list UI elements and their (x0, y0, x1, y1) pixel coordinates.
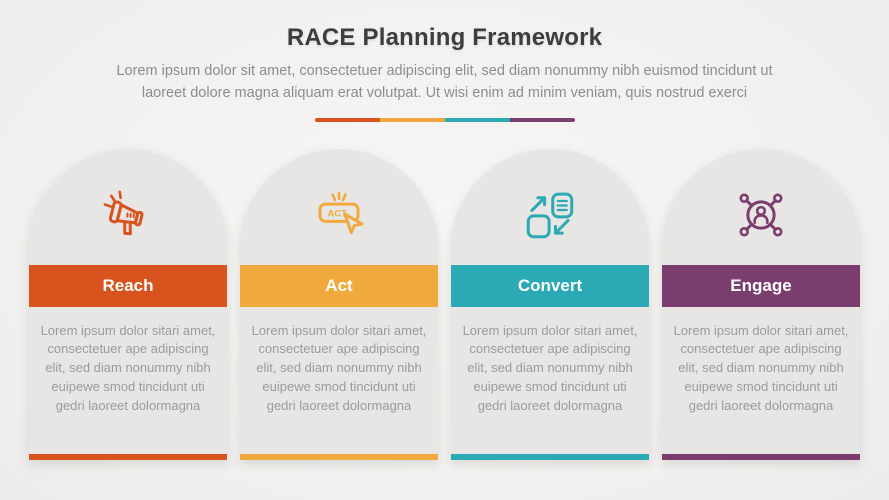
column-act: ACT Act Lorem ipsum dolor sitari amet, c… (240, 149, 438, 460)
column-convert: Convert Lorem ipsum dolor sitari amet, c… (451, 149, 649, 460)
column-description: Lorem ipsum dolor sitari amet, consectet… (673, 322, 849, 417)
person-network-icon (732, 186, 790, 244)
color-divider-bar (315, 118, 575, 122)
column-header: Convert (451, 265, 649, 307)
column-arch-top (451, 149, 649, 265)
divider-segment-engage (510, 118, 575, 122)
column-description: Lorem ipsum dolor sitari amet, consectet… (40, 322, 216, 417)
column-description: Lorem ipsum dolor sitari amet, consectet… (251, 322, 427, 417)
column-accent-strip (662, 454, 860, 460)
page-title: RACE Planning Framework (0, 0, 889, 52)
infographic-canvas: RACE Planning Framework Lorem ipsum dolo… (0, 0, 889, 500)
column-header: Engage (662, 265, 860, 307)
column-title: Convert (518, 276, 582, 296)
column-arch-top (29, 149, 227, 265)
column-body: Lorem ipsum dolor sitari amet, consectet… (662, 307, 860, 454)
page-subtitle: Lorem ipsum dolor sit amet, consectetuer… (0, 61, 889, 105)
column-accent-strip (451, 454, 649, 460)
column-body: Lorem ipsum dolor sitari amet, consectet… (451, 307, 649, 454)
column-title: Reach (102, 276, 153, 296)
divider-segment-act (380, 118, 445, 122)
subtitle-line-1: Lorem ipsum dolor sit amet, consectetuer… (0, 61, 889, 83)
framework-columns: Reach Lorem ipsum dolor sitari amet, con… (29, 149, 860, 460)
column-title: Act (325, 276, 352, 296)
column-accent-strip (240, 454, 438, 460)
column-accent-strip (29, 454, 227, 460)
column-title: Engage (730, 276, 791, 296)
act-button-cursor-icon: ACT (310, 186, 368, 244)
subtitle-line-2: laoreet dolore magna aliquam erat volutp… (0, 83, 889, 105)
megaphone-icon (99, 186, 157, 244)
column-header: Reach (29, 265, 227, 307)
column-body: Lorem ipsum dolor sitari amet, consectet… (29, 307, 227, 454)
divider-segment-reach (315, 118, 380, 122)
column-arch-top: ACT (240, 149, 438, 265)
column-description: Lorem ipsum dolor sitari amet, consectet… (462, 322, 638, 417)
divider-segment-convert (445, 118, 510, 122)
column-body: Lorem ipsum dolor sitari amet, consectet… (240, 307, 438, 454)
column-reach: Reach Lorem ipsum dolor sitari amet, con… (29, 149, 227, 460)
column-header: Act (240, 265, 438, 307)
column-arch-top (662, 149, 860, 265)
transfer-documents-icon (521, 186, 579, 244)
column-engage: Engage Lorem ipsum dolor sitari amet, co… (662, 149, 860, 460)
